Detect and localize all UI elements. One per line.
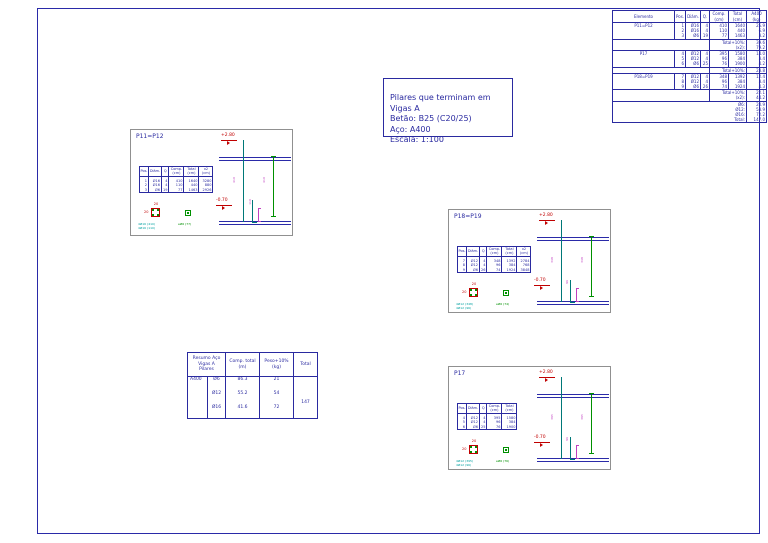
cell: 1580 [502, 413, 517, 420]
column-section-sketch [469, 445, 478, 454]
beam-line [537, 240, 609, 241]
peso-cell: 21 [260, 377, 294, 391]
cell: 1392 [502, 256, 517, 263]
comp-cell: 55.2 [226, 391, 260, 405]
section-height-dim: 20 [144, 210, 148, 214]
detail-box-p18-p19: P18=P19 Pos.Diâm.QComp. (cm)Total (cm)x2… [448, 209, 611, 313]
table-row: 7Ø12434813922784 [458, 256, 531, 263]
notes-text: Pilares que terminam em Vigas A Betão: B… [390, 93, 491, 144]
cell: 77 [169, 188, 184, 193]
comp-cell: 86.3 [226, 377, 260, 391]
cell: 76 [487, 425, 502, 430]
cell: 1924 [502, 268, 517, 273]
resumo-comp-header: Comp. total (m) [226, 353, 260, 377]
header-row: Pos.Diâm.QComp. (cm)Total (cm)x2 (cm) [458, 247, 531, 257]
grand-total-value: 147.0 [747, 117, 767, 123]
grade-cell [188, 405, 208, 419]
lap-dimension-bracket [258, 208, 259, 222]
lap-length-label: 96 [565, 437, 569, 441]
bar-length-label: 348 [580, 257, 584, 263]
table-row: 3Ø6197714632926 [140, 188, 213, 193]
col-header: Pos. [458, 247, 467, 257]
diam-cell: Ø12 [208, 391, 226, 405]
diam-cell: Ø16 [208, 405, 226, 419]
beam-line [537, 461, 609, 462]
detail-bar-table: Pos.Diâm.QComp. (cm)Total (cm)x2 (cm)1Ø1… [139, 166, 213, 193]
cell: 26 [480, 268, 487, 273]
col-header: Total (cm) [729, 11, 747, 23]
col-header: Diâm. [467, 247, 480, 257]
stirrup-caption: eØ6 (77) [178, 222, 191, 226]
cell: 4 [458, 413, 467, 420]
peso-cell: 54 [260, 391, 294, 405]
cell: 3 [140, 188, 149, 193]
section-height-dim: 20 [462, 447, 466, 451]
grade-cell: A400 [188, 377, 208, 391]
cell: 395 [487, 413, 502, 420]
col-header: Q. [701, 11, 710, 23]
top-level-value: +2.80 [539, 213, 553, 218]
col-header: Pos. [458, 404, 467, 414]
col-header: Diâm. [149, 167, 162, 177]
grade-cell [188, 391, 208, 405]
bar-length-label: 348 [550, 257, 554, 263]
detail-box-p11-p12: P11=P12 Pos.Diâm.QComp. (cm)Total (cm)x2… [130, 129, 293, 236]
level-flag-icon [545, 378, 548, 382]
diam-cell: Ø6 [208, 377, 226, 391]
bottom-level-mark: -0.70 [216, 199, 232, 210]
cell: 348 [487, 256, 502, 263]
element-name: P17 [613, 50, 675, 67]
beam-line [219, 224, 291, 225]
cell: 25 [480, 425, 487, 430]
peso-cell: 72 [260, 405, 294, 419]
total-cell: 147 [294, 377, 318, 419]
beam-line [537, 237, 609, 238]
level-flag-icon [227, 141, 230, 145]
col-header: A400 (kg) [747, 11, 767, 23]
lap-bar-line [570, 280, 571, 303]
top-level-value: +2.80 [221, 133, 235, 138]
table-row: 6Ø625761900 [458, 425, 517, 430]
header-row: Pos.Diâm.QComp. (cm)Total (cm)x2 (cm) [140, 167, 213, 177]
beam-line [537, 397, 609, 398]
col-header: Comp. (cm) [710, 11, 729, 23]
column-section-sketch [151, 208, 160, 217]
stirrup-section-sketch [503, 290, 509, 296]
col-header: Diâm. [467, 404, 480, 414]
bottom-level-value: -0.70 [216, 198, 228, 203]
rebar-line [591, 236, 592, 297]
section-width-dim: 20 [469, 282, 479, 286]
col-header: Elemento [613, 11, 675, 23]
section-height-dim: 20 [462, 290, 466, 294]
bottom-level-value: -0.70 [534, 278, 546, 283]
cell: 1463 [184, 188, 199, 193]
beam-line [537, 304, 609, 305]
rebar-line [561, 220, 562, 302]
lap-length-label: 96 [565, 280, 569, 284]
beam-line [219, 160, 291, 161]
top-level-mark: +2.80 [539, 214, 555, 225]
rebar-line [591, 393, 592, 454]
grand-total-label: Total: [613, 117, 747, 123]
detail-title: P18=P19 [454, 213, 482, 220]
col-header: Total (cm) [502, 247, 517, 257]
section-width-dim: 20 [151, 202, 161, 206]
bottom-level-mark: -0.70 [534, 436, 550, 447]
beam-line [219, 157, 291, 158]
level-flag-icon [540, 443, 543, 447]
comp-cell: 41.6 [226, 405, 260, 419]
cell: 2784 [517, 256, 531, 263]
bottom-level-value: -0.70 [534, 435, 546, 440]
table-row: 1Ø16441016403280 [140, 176, 213, 183]
bottom-level-mark: -0.70 [534, 279, 550, 290]
stirrup-caption: eØ6 (76) [496, 459, 509, 463]
cell: Ø6 [467, 268, 480, 273]
bar-length-label: 395 [580, 414, 584, 420]
table-row: 4Ø1243951580 [458, 413, 517, 420]
rebar-line [273, 156, 274, 217]
detail-title: P11=P12 [136, 133, 164, 140]
element-name: P18=P19 [613, 73, 675, 90]
top-level-value: +2.80 [539, 370, 553, 375]
cell: 1900 [502, 425, 517, 430]
top-level-mark: +2.80 [539, 371, 555, 382]
section-caption-2: 4Ø12 (96) [456, 463, 471, 467]
stirrup-caption: eØ6 (74) [496, 302, 509, 306]
cell: 3280 [199, 176, 213, 183]
cell: 4 [480, 256, 487, 263]
grand-total-row: Total:147.0 [613, 117, 767, 123]
col-header: x2 (cm) [199, 167, 213, 177]
col-header: Diâm. [686, 11, 701, 23]
col-header: Q [162, 167, 169, 177]
level-flag-icon [222, 206, 225, 210]
resumo-peso-header: Peso+10% (kg) [260, 353, 294, 377]
bar-length-label: 410 [262, 177, 266, 183]
bar-length-label: 410 [232, 177, 236, 183]
lap-dimension-bracket [576, 445, 577, 459]
stirrup-section-sketch [503, 447, 509, 453]
cell: Ø6 [149, 188, 162, 193]
section-caption-2: 4Ø12 (96) [456, 306, 471, 310]
col-header: Comp. (cm) [487, 404, 502, 414]
section-width-dim: 20 [469, 439, 479, 443]
resumo-table: Resumo Aço Vigas A Pilares Comp. total (… [187, 352, 318, 419]
col-header: Comp. (cm) [487, 247, 502, 257]
cell: Ø6 [467, 425, 480, 430]
cell: 1 [140, 176, 149, 183]
cell: 6 [458, 425, 467, 430]
bar-length-label: 395 [550, 414, 554, 420]
notes-box: Pilares que terminam em Vigas A Betão: B… [383, 78, 513, 137]
cell: 4 [162, 176, 169, 183]
col-header: Q [480, 404, 487, 414]
detail-bar-table: Pos.Diâm.QComp. (cm)Total (cm)x2 (cm)7Ø1… [457, 246, 531, 273]
rebar-line [561, 377, 562, 459]
col-header: Total (cm) [502, 404, 517, 414]
level-flag-icon [540, 286, 543, 290]
detail-box-p17: P17 Pos.Diâm.QComp. (cm)Total (cm)4Ø1243… [448, 366, 611, 470]
table-row: 9Ø6267419243848 [458, 268, 531, 273]
detail-bar-table: Pos.Diâm.QComp. (cm)Total (cm)4Ø12439515… [457, 403, 517, 430]
cell: 9 [458, 268, 467, 273]
lap-bar-line [252, 200, 253, 223]
element-name: P11=P12 [613, 23, 675, 40]
resumo-total-header: Total [294, 353, 318, 377]
lap-dimension-bracket [576, 288, 577, 302]
cell: 19 [162, 188, 169, 193]
section-caption-2: 4Ø16 (110) [138, 226, 155, 230]
col-header: Comp. (cm) [169, 167, 184, 177]
cell: 410 [169, 176, 184, 183]
summary-table: ElementoPos.Diâm.Q.Comp. (cm)Total (cm)A… [612, 10, 767, 123]
col-header: Pos. [140, 167, 149, 177]
column-section-sketch [469, 288, 478, 297]
cell: 2926 [199, 188, 213, 193]
cell: 74 [487, 268, 502, 273]
header-row: Pos.Diâm.QComp. (cm)Total (cm) [458, 404, 517, 414]
lap-length-label: 110 [248, 199, 252, 205]
col-header: Pos. [675, 11, 686, 23]
detail-title: P17 [454, 370, 465, 377]
stirrup-section-sketch [185, 210, 191, 216]
col-header: x2 (cm) [517, 247, 531, 257]
cell: 4 [480, 413, 487, 420]
cell: 1640 [184, 176, 199, 183]
top-level-mark: +2.80 [221, 134, 237, 145]
col-header: Q [480, 247, 487, 257]
cell: 7 [458, 256, 467, 263]
lap-bar-line [570, 437, 571, 460]
rebar-line [243, 140, 244, 222]
level-flag-icon [545, 221, 548, 225]
col-header: Total (cm) [184, 167, 199, 177]
cell: 3848 [517, 268, 531, 273]
resumo-title: Resumo Aço Vigas A Pilares [188, 353, 226, 377]
header-row: ElementoPos.Diâm.Q.Comp. (cm)Total (cm)A… [613, 11, 767, 23]
drawing-sheet: ElementoPos.Diâm.Q.Comp. (cm)Total (cm)A… [0, 0, 768, 543]
beam-line [537, 394, 609, 395]
